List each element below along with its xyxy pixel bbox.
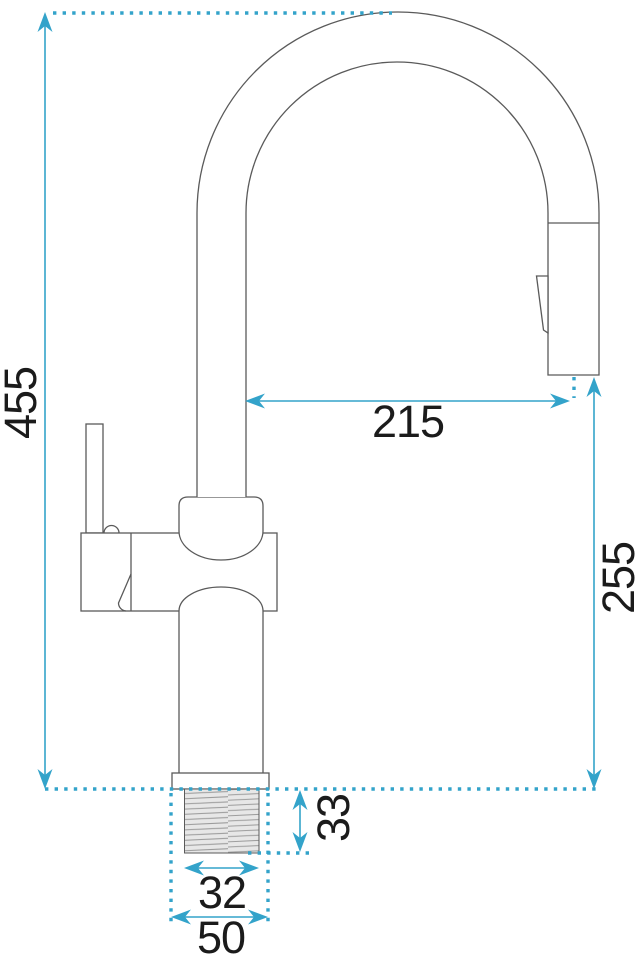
handle-pivot-dome xyxy=(104,526,119,533)
handle-lever xyxy=(86,424,103,533)
threaded-shank xyxy=(185,789,260,853)
dim-outlet-clearance-label: 255 xyxy=(593,542,637,614)
drawing-canvas: 455 215 255 33 32 50 xyxy=(0,0,637,958)
faucet-outline xyxy=(81,12,599,853)
dim-overall-height-label: 455 xyxy=(0,367,46,439)
dim-hole-diameter-label: 50 xyxy=(197,912,245,958)
dim-spout-reach-label: 215 xyxy=(372,396,444,447)
spray-head-clip xyxy=(537,276,549,333)
base-flange xyxy=(172,773,269,789)
riser-collar xyxy=(179,497,263,560)
dim-thread-diameter-label: 32 xyxy=(198,867,246,918)
base-column xyxy=(179,587,263,773)
faucet-dimension-drawing: 455 215 255 33 32 50 xyxy=(0,0,637,958)
dim-thread-length-label: 33 xyxy=(308,794,359,842)
